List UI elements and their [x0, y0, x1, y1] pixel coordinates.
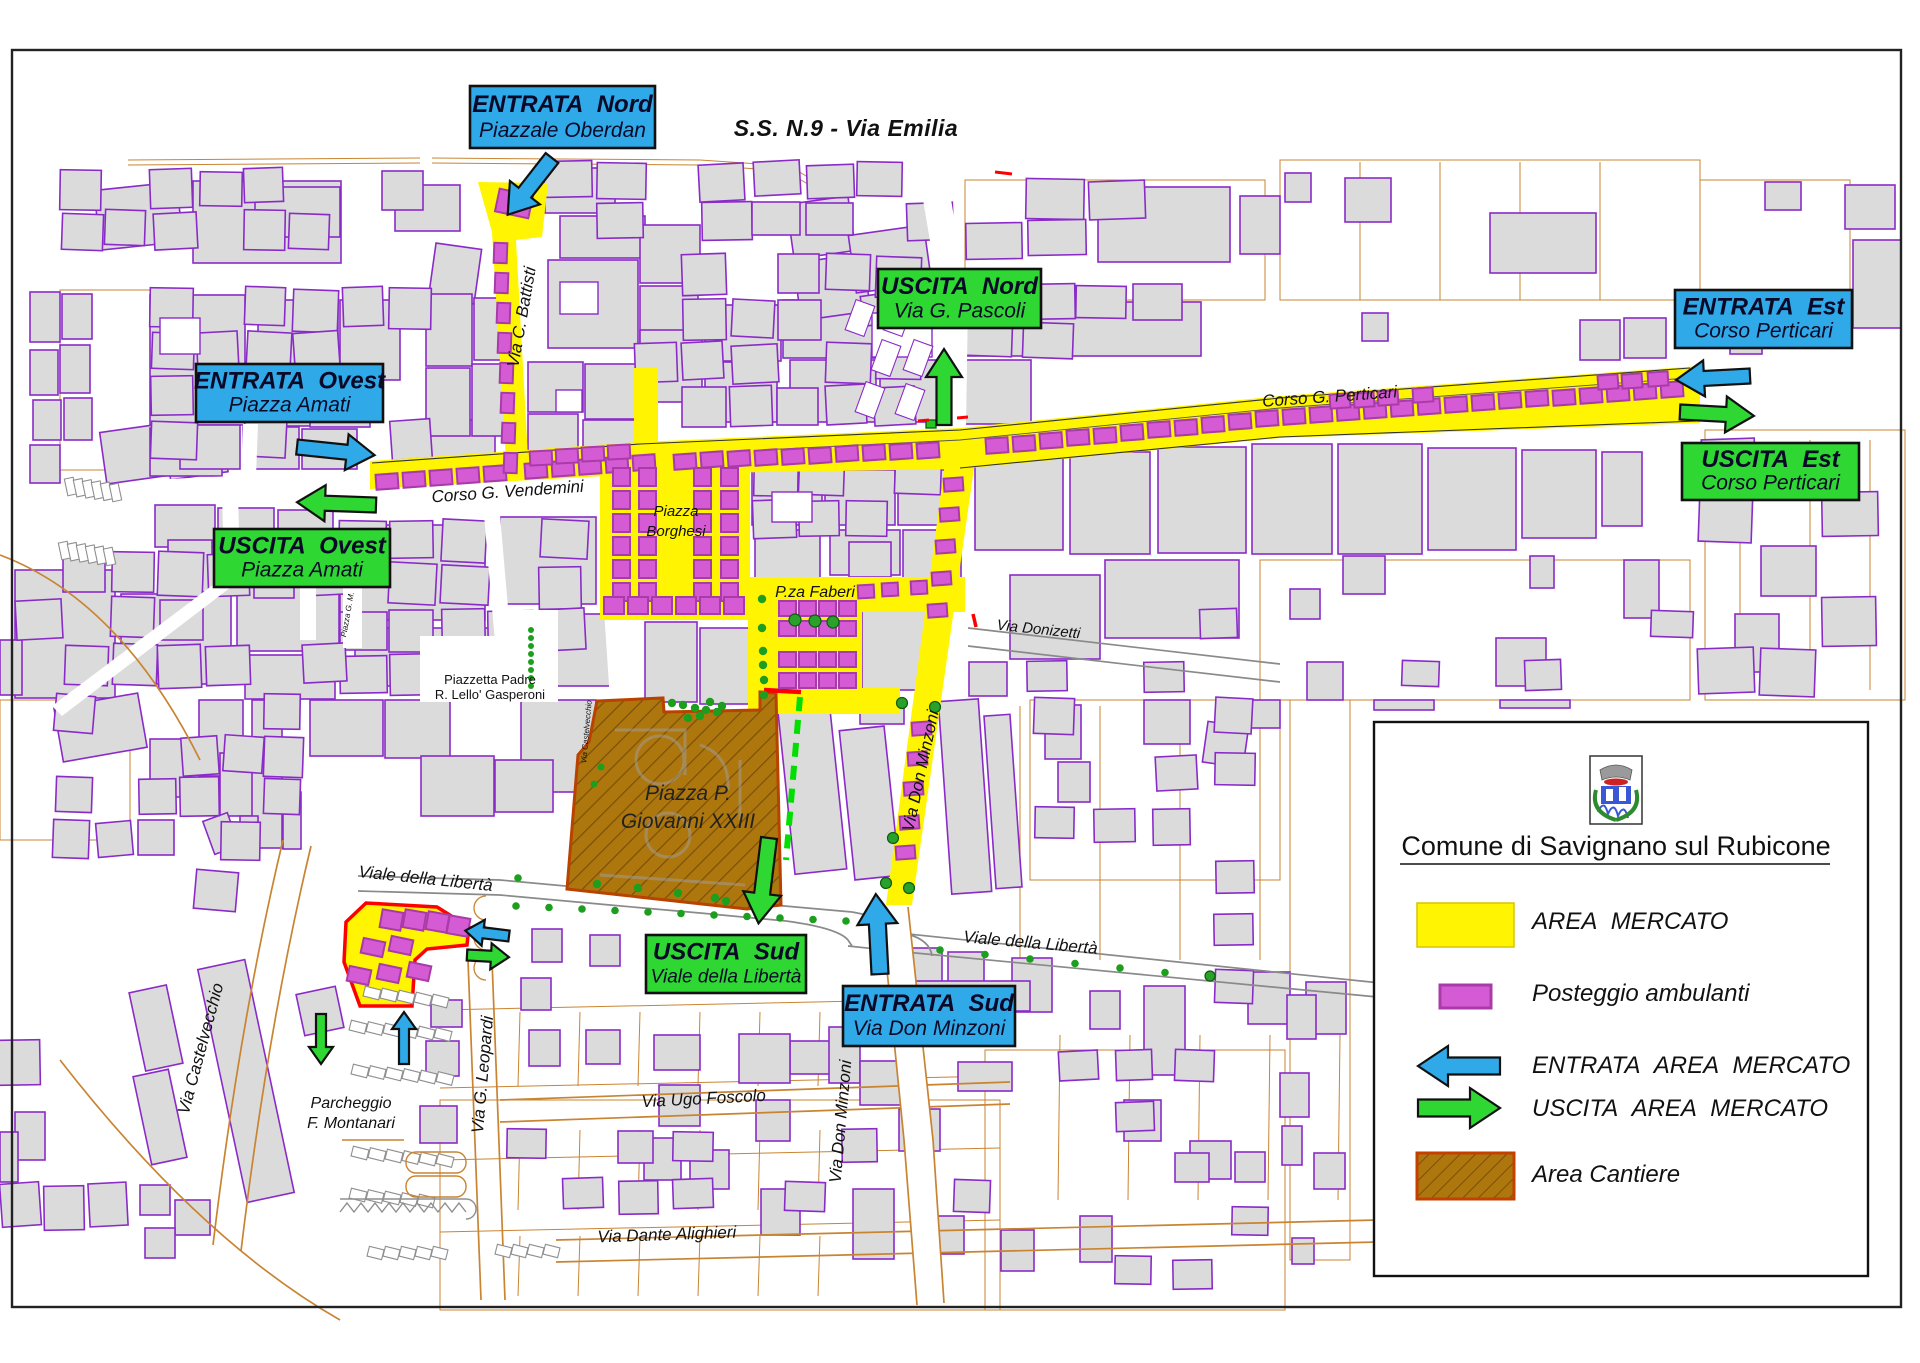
svg-text:R. Lello' Gasperoni: R. Lello' Gasperoni	[435, 687, 545, 702]
svg-text:ENTRATA AREA MERCATO: ENTRATA AREA MERCATO	[1532, 1052, 1850, 1079]
svg-text:Piazzale Oberdan: Piazzale Oberdan	[479, 119, 646, 142]
svg-text:Piazza: Piazza	[653, 503, 698, 520]
svg-text:Area Cantiere: Area Cantiere	[1530, 1161, 1680, 1188]
svg-text:Posteggio ambulanti: Posteggio ambulanti	[1532, 980, 1750, 1007]
svg-text:ENTRATA Nord: ENTRATA Nord	[472, 91, 654, 118]
svg-text:ENTRATA Sud: ENTRATA Sud	[844, 990, 1015, 1017]
svg-text:P.za Faberi: P.za Faberi	[775, 584, 855, 601]
svg-text:Piazza Amati: Piazza Amati	[229, 394, 352, 417]
svg-text:AREA MERCATO: AREA MERCATO	[1530, 908, 1728, 935]
svg-text:USCITA Ovest: USCITA Ovest	[218, 532, 387, 559]
svg-text:USCITA Nord: USCITA Nord	[881, 273, 1039, 300]
svg-text:ENTRATA Est: ENTRATA Est	[1683, 293, 1846, 320]
svg-text:Via Don Minzoni: Via Don Minzoni	[853, 1017, 1007, 1040]
svg-text:Parcheggio: Parcheggio	[311, 1095, 392, 1112]
svg-text:Piazza P.: Piazza P.	[645, 782, 731, 805]
svg-text:USCITA AREA MERCATO: USCITA AREA MERCATO	[1532, 1095, 1828, 1122]
svg-text:Corso Perticari: Corso Perticari	[1694, 320, 1834, 343]
svg-text:Giovanni XXIII: Giovanni XXIII	[621, 810, 755, 833]
svg-text:Piazza Amati: Piazza Amati	[241, 559, 364, 582]
svg-text:Viale della Libertà: Viale della Libertà	[651, 967, 802, 988]
svg-text:Comune di Savignano sul Rubico: Comune di Savignano sul Rubicone	[1401, 831, 1830, 861]
svg-text:Borghesi: Borghesi	[646, 523, 706, 540]
svg-text:Piazzetta Padre: Piazzetta Padre	[444, 672, 536, 687]
svg-text:Via G. Pascoli: Via G. Pascoli	[894, 299, 1027, 322]
svg-text:ENTRATA Ovest: ENTRATA Ovest	[194, 367, 386, 394]
svg-text:Corso Perticari: Corso Perticari	[1701, 472, 1841, 495]
svg-text:F. Montanari: F. Montanari	[307, 1115, 395, 1132]
svg-text:S.S. N.9 - Via Emilia: S.S. N.9 - Via Emilia	[734, 115, 958, 141]
svg-text:USCITA Est: USCITA Est	[1701, 446, 1840, 473]
svg-text:USCITA Sud: USCITA Sud	[653, 938, 801, 965]
